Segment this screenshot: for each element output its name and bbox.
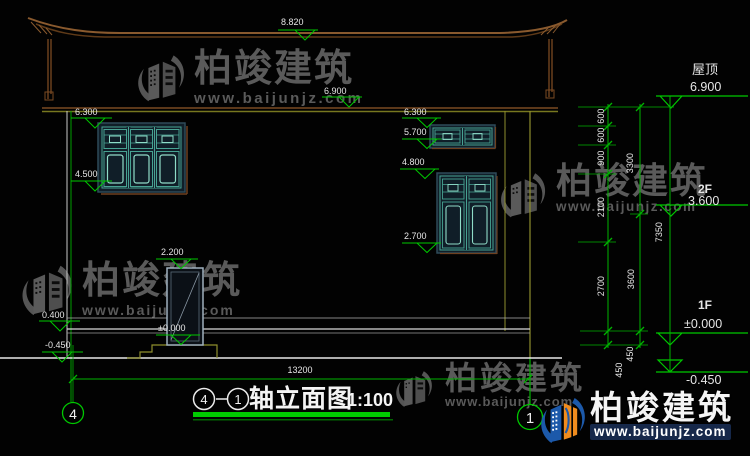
- label-roof-level: 6.900: [690, 80, 721, 94]
- dim-3600: 3600: [626, 259, 636, 299]
- floor-lines: [67, 318, 530, 333]
- level-0400: 0.400: [42, 310, 65, 320]
- label-roof: 屋顶: [692, 63, 718, 78]
- dim-450-a: 450: [614, 350, 624, 390]
- title-bubble-1: 1: [232, 393, 244, 408]
- window-2f-right: [430, 125, 496, 149]
- dim-2700: 2700: [596, 266, 606, 306]
- elevation-markers: [39, 30, 441, 362]
- level-4800: 4.800: [402, 157, 425, 167]
- axis-bubble-4: 4: [66, 406, 80, 422]
- dim-2100: 2100: [596, 187, 606, 227]
- watermark-brand-color: 柏竣建筑 www.baijunjz.com: [538, 386, 750, 456]
- level-4500: 4.500: [75, 169, 98, 179]
- level-6300-left: 6.300: [75, 107, 98, 117]
- axis-bubble-1: 1: [523, 410, 537, 427]
- cad-elevation-drawing: 柏竣建筑 www.baijunjz.com 柏竣建筑 www.baijunjz.…: [0, 0, 750, 456]
- entrance-door: [167, 268, 203, 345]
- window-2f-left: [98, 123, 187, 194]
- level-5700: 5.700: [404, 127, 427, 137]
- label-1f-level: ±0.000: [684, 317, 722, 331]
- level-2700: 2.700: [404, 231, 427, 241]
- dim-7350: 7350: [654, 212, 664, 252]
- drawing-scale: 1:100: [347, 390, 393, 411]
- entry-steps: [127, 345, 217, 358]
- level-neg450-left: -0.450: [45, 340, 71, 350]
- dim-450-b: 450: [625, 334, 635, 374]
- label-ground-level: -0.450: [686, 373, 721, 387]
- window-stair: [437, 173, 497, 254]
- title-bubble-4: 4: [198, 393, 210, 408]
- level-2200: 2.200: [161, 247, 184, 257]
- brand-logo-color-icon: [538, 386, 588, 455]
- watermark-brand: 柏竣建筑: [590, 391, 734, 424]
- dim-13200: 13200: [280, 365, 320, 375]
- drawing-title: 轴立面图: [249, 385, 353, 414]
- dim-3300: 3300: [625, 143, 635, 183]
- label-2f-level: 3.600: [688, 194, 719, 208]
- level-eave: 6.900: [324, 86, 347, 96]
- level-6300-right: 6.300: [404, 107, 427, 117]
- level-ridge: 8.820: [281, 17, 304, 27]
- label-1f: 1F: [698, 299, 712, 313]
- watermark-url: www.baijunjz.com: [590, 424, 731, 440]
- level-zero-door: ±0.000: [158, 323, 185, 333]
- dim-900: 900: [596, 138, 606, 178]
